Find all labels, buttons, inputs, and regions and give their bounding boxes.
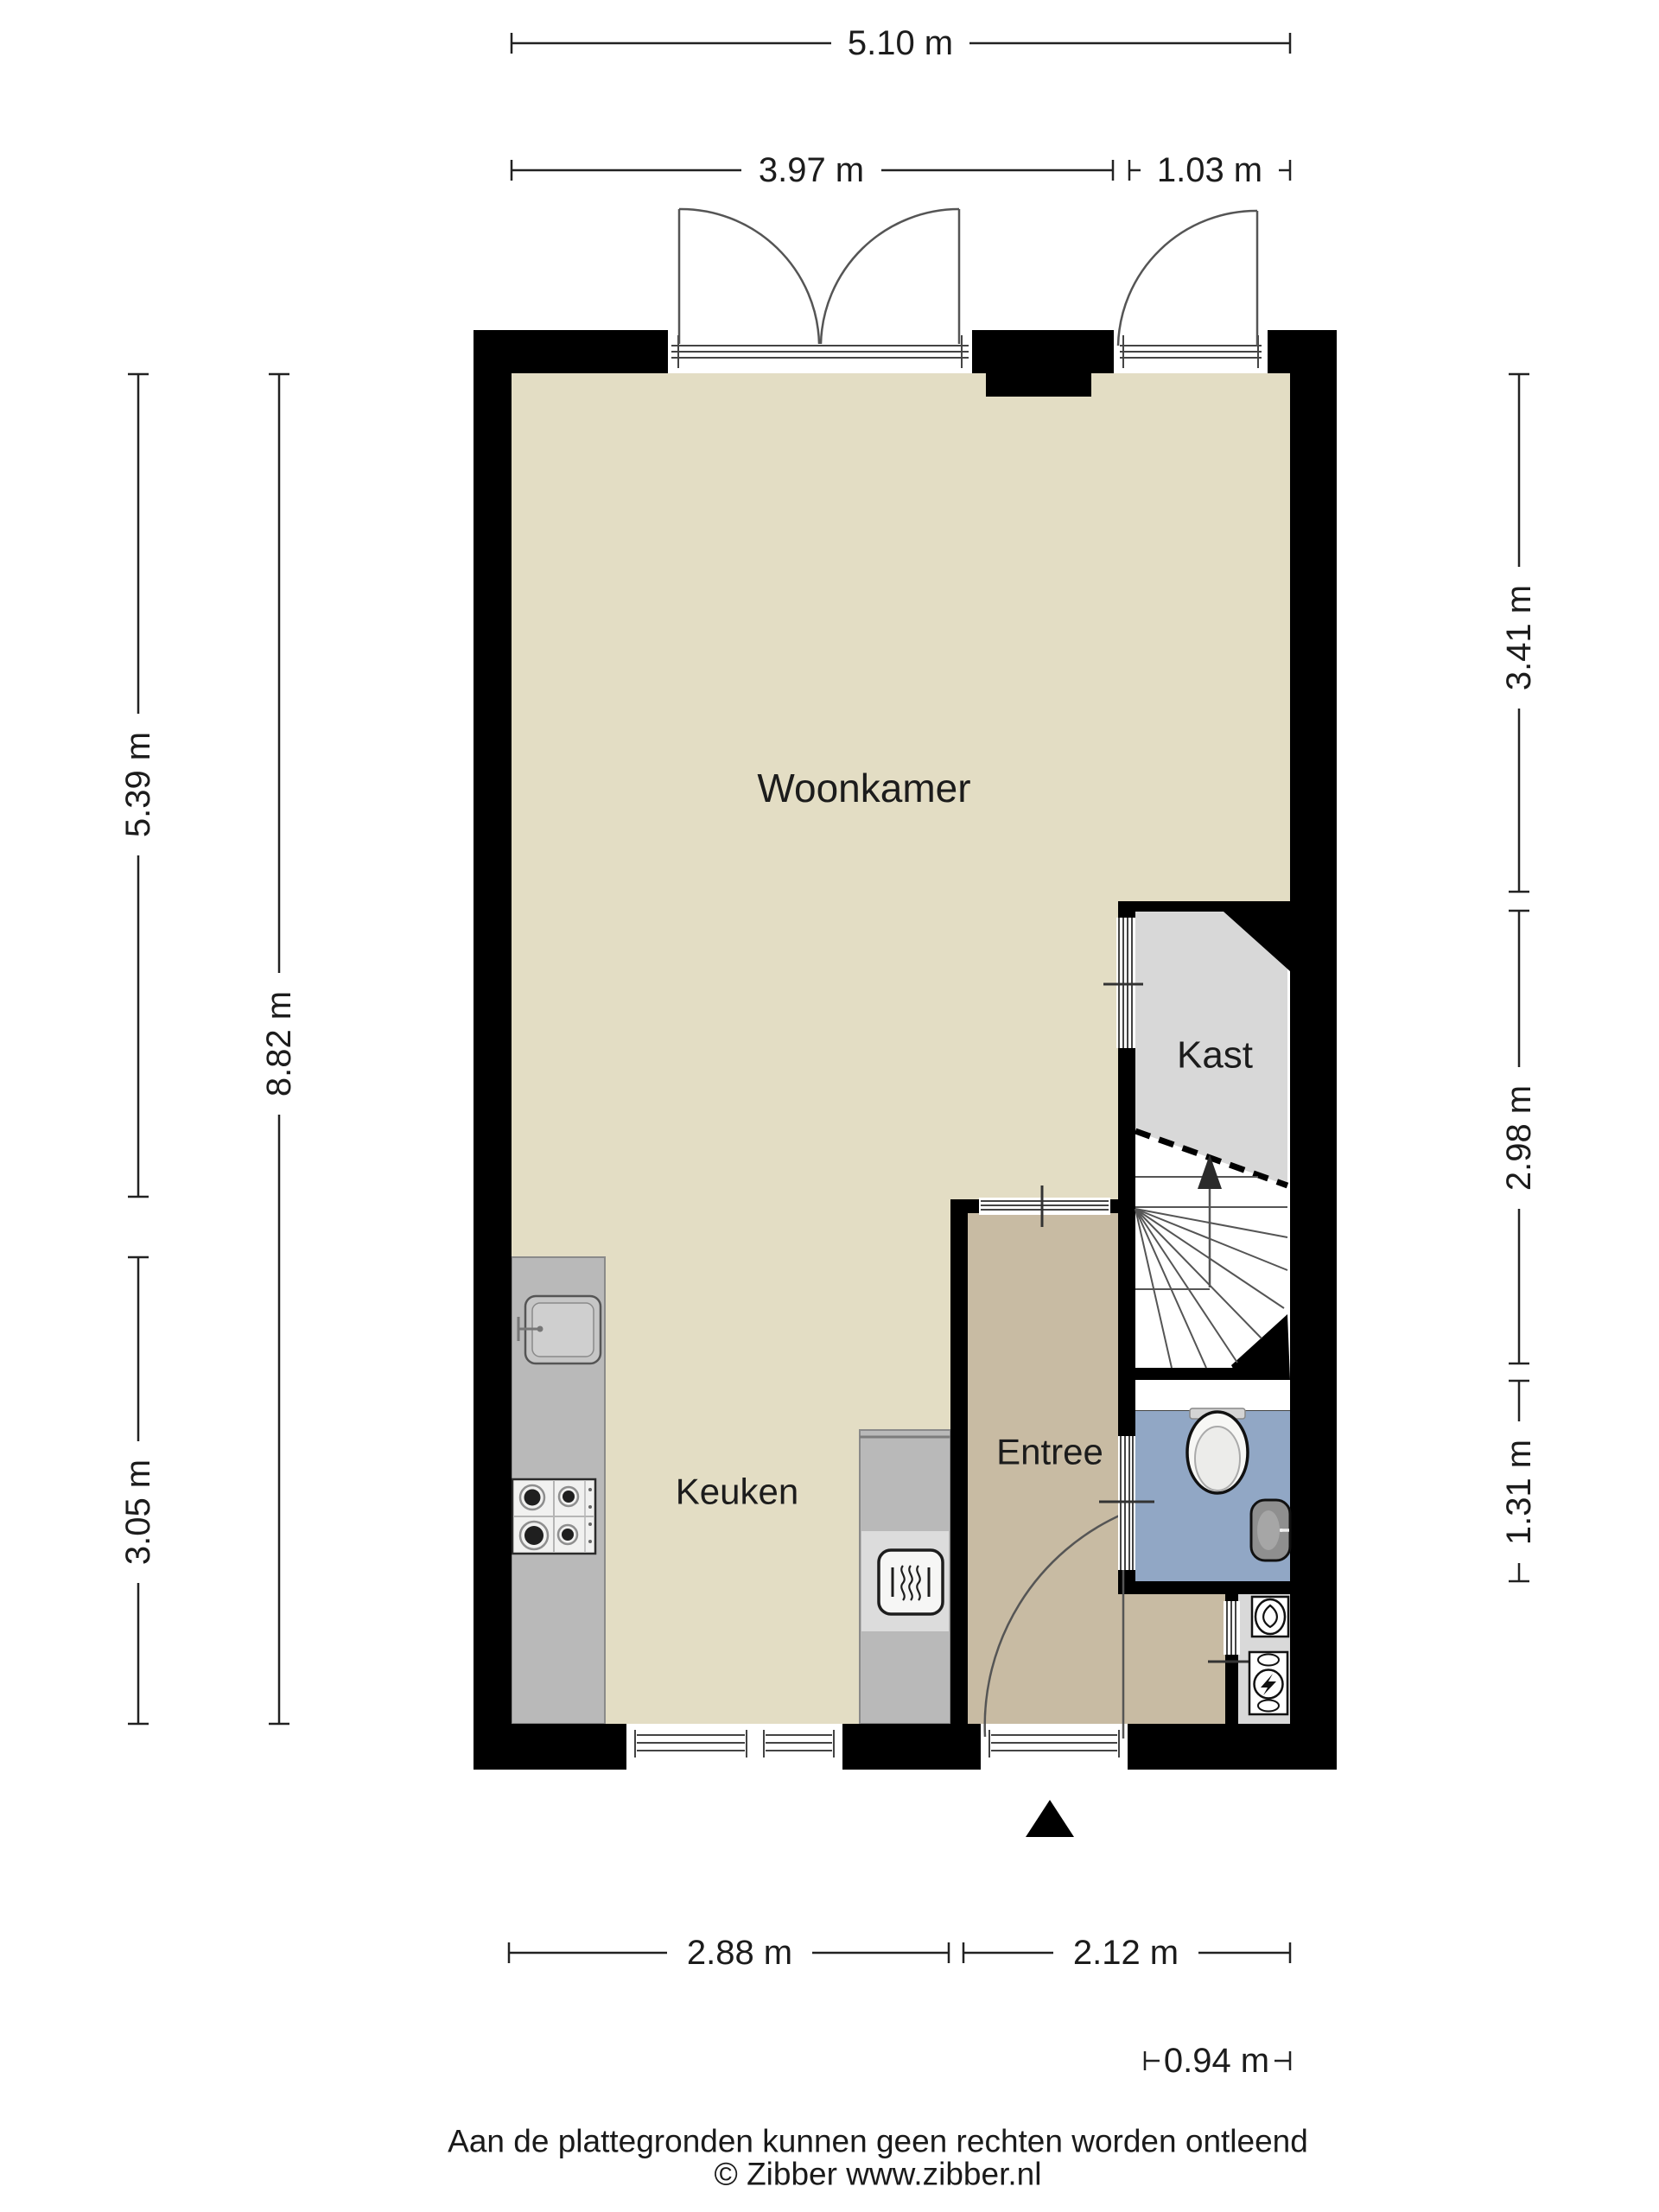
dim-label: 5.39 m xyxy=(119,732,157,837)
dim-right-lower: 1.31 m xyxy=(1500,1381,1538,1581)
bathroom-shelf xyxy=(1135,1380,1290,1411)
dim-top-total: 5.10 m xyxy=(512,24,1290,62)
dim-label: 2.98 m xyxy=(1500,1085,1538,1191)
utility-fixtures xyxy=(1249,1597,1288,1714)
dim-left-lower: 3.05 m xyxy=(119,1257,157,1724)
dim-label: 3.41 m xyxy=(1500,585,1538,690)
dim-bottom-bathroom: 0.94 m xyxy=(1145,2042,1290,2080)
wall-kitchen-entrance xyxy=(950,1199,968,1724)
floorplan-page: 5.10 m 3.97 m 1.03 m 5.39 m 3.05 m 8.82 xyxy=(0,0,1659,2212)
toilet-icon xyxy=(1187,1408,1248,1493)
footer: Aan de plattegronden kunnen geen rechten… xyxy=(448,2124,1308,2192)
dim-bottom-left: 2.88 m xyxy=(509,1934,949,1972)
dim-label: 3.97 m xyxy=(759,151,864,189)
meter-icon xyxy=(1249,1652,1287,1714)
footer-disclaimer: Aan de plattegronden kunnen geen rechten… xyxy=(448,2124,1308,2159)
sink-icon xyxy=(518,1296,601,1363)
wall-stairs-bottom xyxy=(1118,1368,1239,1380)
dim-bottom-right: 2.12 m xyxy=(963,1934,1290,1972)
washbasin-icon xyxy=(1251,1500,1290,1560)
dim-label: 5.10 m xyxy=(848,24,953,62)
entrance-arrow-icon xyxy=(1026,1800,1074,1837)
door-arc-left xyxy=(679,209,819,344)
door-arc-right xyxy=(821,209,959,344)
boiler-icon xyxy=(1252,1597,1288,1637)
dim-label: 1.03 m xyxy=(1157,151,1262,189)
oven-icon xyxy=(879,1550,943,1614)
kitchen-window xyxy=(626,1724,842,1770)
dim-top-left: 3.97 m xyxy=(512,151,1113,189)
dim-left-upper: 5.39 m xyxy=(119,374,157,1197)
dim-label: 3.05 m xyxy=(119,1459,157,1565)
wall-bottom xyxy=(474,1724,1337,1770)
dim-label: 1.31 m xyxy=(1500,1440,1538,1545)
floor-plan: 5.10 m 3.97 m 1.03 m 5.39 m 3.05 m 8.82 xyxy=(0,0,1659,2212)
kitchen-label: Keuken xyxy=(676,1471,798,1512)
entrance-label: Entree xyxy=(996,1432,1103,1472)
dim-left-total: 8.82 m xyxy=(260,374,298,1724)
french-doors xyxy=(668,209,972,373)
dim-right-upper: 3.41 m xyxy=(1500,374,1538,892)
dim-label: 2.88 m xyxy=(687,1934,792,1972)
wall-bathroom-bottom xyxy=(1120,1581,1290,1594)
door-arc-single xyxy=(1118,211,1257,346)
living-room-label: Woonkamer xyxy=(757,766,970,810)
wall-right xyxy=(1290,330,1337,1770)
single-door-top xyxy=(1114,211,1268,373)
dim-label: 2.12 m xyxy=(1073,1934,1179,1972)
stove-icon xyxy=(512,1479,595,1554)
dim-label: 8.82 m xyxy=(260,991,298,1096)
closet-label: Kast xyxy=(1177,1034,1253,1077)
wall-closet-top xyxy=(1135,901,1290,912)
dim-label: 0.94 m xyxy=(1164,2042,1269,2080)
wall-left xyxy=(474,330,512,1770)
wall-top-pillar xyxy=(986,373,1091,397)
dim-top-right: 1.03 m xyxy=(1129,151,1290,189)
footer-copyright: © Zibber www.zibber.nl xyxy=(715,2157,1042,2192)
dim-right-middle: 2.98 m xyxy=(1500,911,1538,1363)
